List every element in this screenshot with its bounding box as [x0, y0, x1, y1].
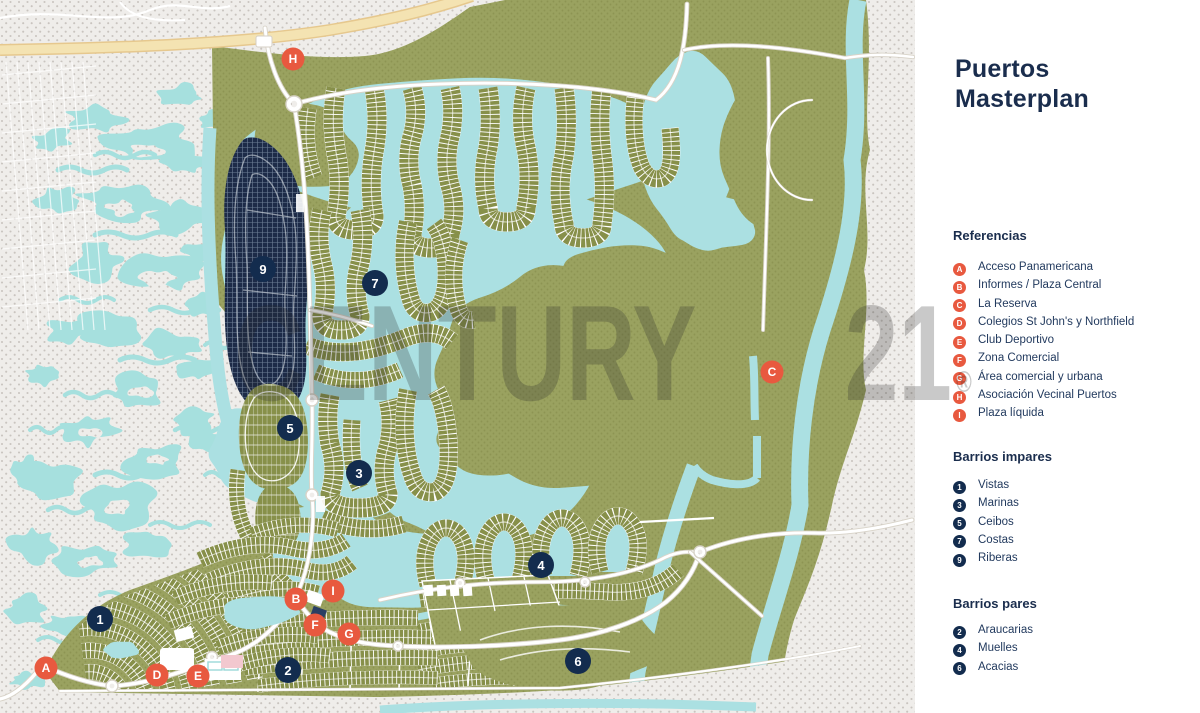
- svg-text:4: 4: [537, 558, 545, 573]
- svg-text:B: B: [292, 592, 301, 606]
- svg-text:1: 1: [96, 612, 103, 627]
- svg-text:E: E: [194, 669, 202, 683]
- svg-text:H: H: [289, 52, 298, 66]
- svg-text:A: A: [42, 661, 51, 675]
- svg-text:I: I: [331, 584, 334, 598]
- svg-text:G: G: [344, 627, 353, 641]
- svg-text:2: 2: [284, 663, 291, 678]
- svg-text:D: D: [153, 668, 162, 682]
- svg-text:3: 3: [355, 466, 362, 481]
- svg-text:F: F: [311, 618, 318, 632]
- svg-text:6: 6: [574, 654, 581, 669]
